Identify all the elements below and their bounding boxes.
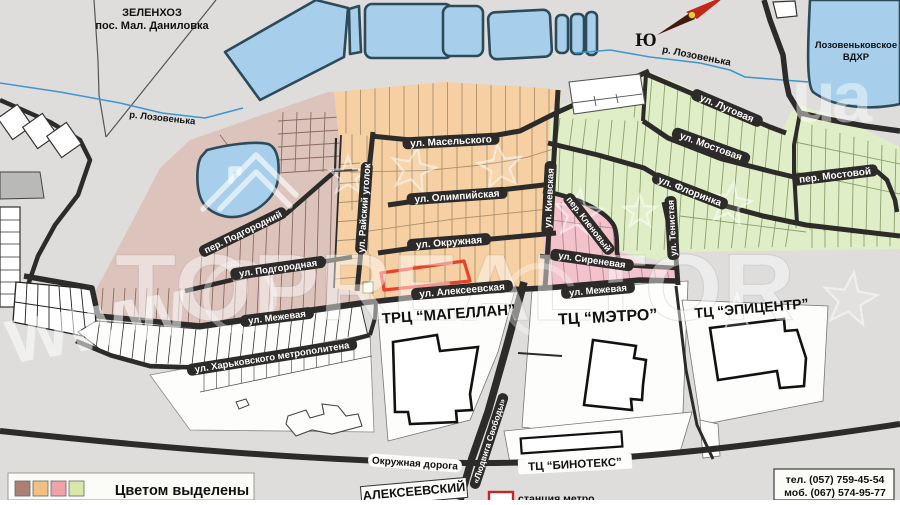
svg-text:пос. Мал. Даниловка: пос. Мал. Даниловка — [95, 20, 209, 32]
svg-text:Лозовеньковское: Лозовеньковское — [815, 40, 897, 51]
svg-text:ua: ua — [792, 58, 873, 138]
svg-text:моб. (067) 574-95-77: моб. (067) 574-95-77 — [784, 487, 886, 499]
svg-text:Ю: Ю — [635, 30, 656, 51]
svg-text:ВДХР: ВДХР — [843, 52, 870, 63]
svg-text:ЗЕЛЕНХОЗ: ЗЕЛЕНХОЗ — [122, 7, 182, 19]
svg-text:Цветом выделены: Цветом выделены — [115, 483, 249, 499]
svg-text:станция метро: станция метро — [518, 493, 595, 500]
svg-text:тел. (057) 759-45-54: тел. (057) 759-45-54 — [786, 474, 885, 486]
